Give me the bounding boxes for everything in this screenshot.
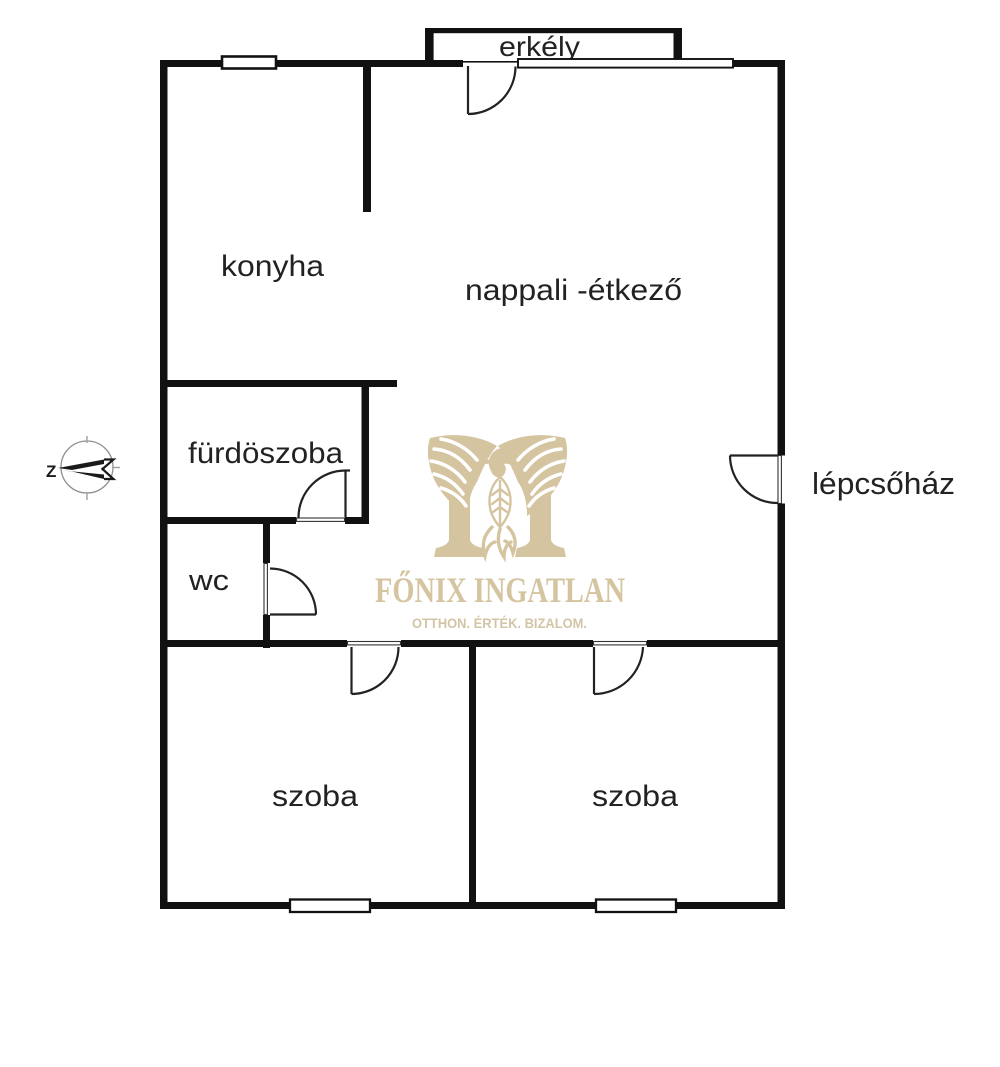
svg-text:FŐNIX INGATLAN: FŐNIX INGATLAN (375, 570, 625, 610)
svg-text:lépcsőház: lépcsőház (812, 466, 955, 501)
svg-text:konyha: konyha (221, 250, 324, 283)
svg-text:nappali -étkező: nappali -étkező (465, 274, 682, 307)
svg-text:wc: wc (188, 565, 229, 597)
svg-text:erkély: erkély (499, 31, 580, 62)
svg-text:szoba: szoba (592, 780, 678, 813)
svg-text:fürdöszoba: fürdöszoba (188, 437, 343, 470)
svg-text:szoba: szoba (272, 780, 358, 813)
svg-text:OTTHON. ÉRTÉK. BIZALOM.: OTTHON. ÉRTÉK. BIZALOM. (412, 615, 587, 631)
svg-text:Z: Z (46, 462, 56, 481)
